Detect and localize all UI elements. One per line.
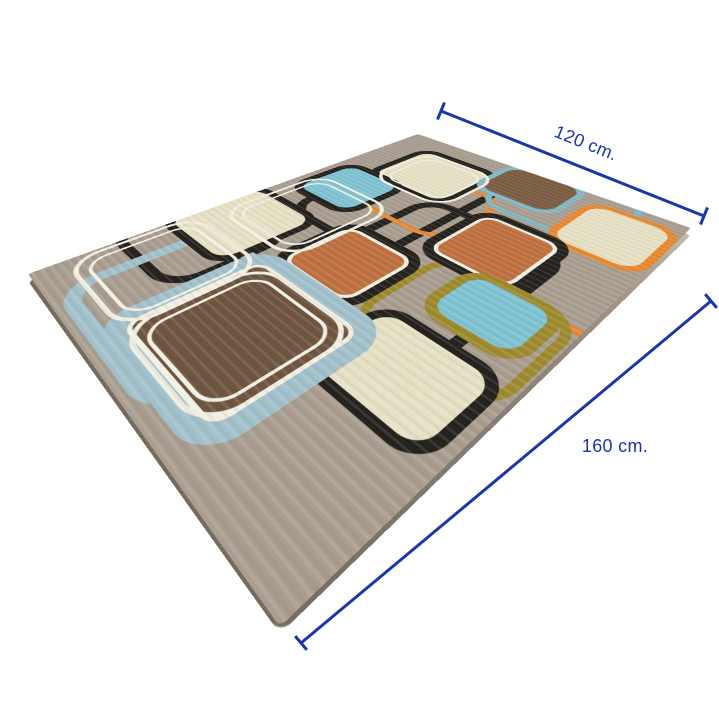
dimension-tick — [701, 208, 708, 225]
width-dimension-label: 120 cm. — [552, 121, 621, 164]
length-dimension-label: 160 cm. — [582, 436, 648, 456]
dimension-tick — [438, 103, 445, 120]
dimension-tick — [295, 636, 307, 650]
dimension-tick — [705, 294, 717, 308]
product-image-canvas: 120 cm. 160 cm. — [0, 0, 719, 719]
